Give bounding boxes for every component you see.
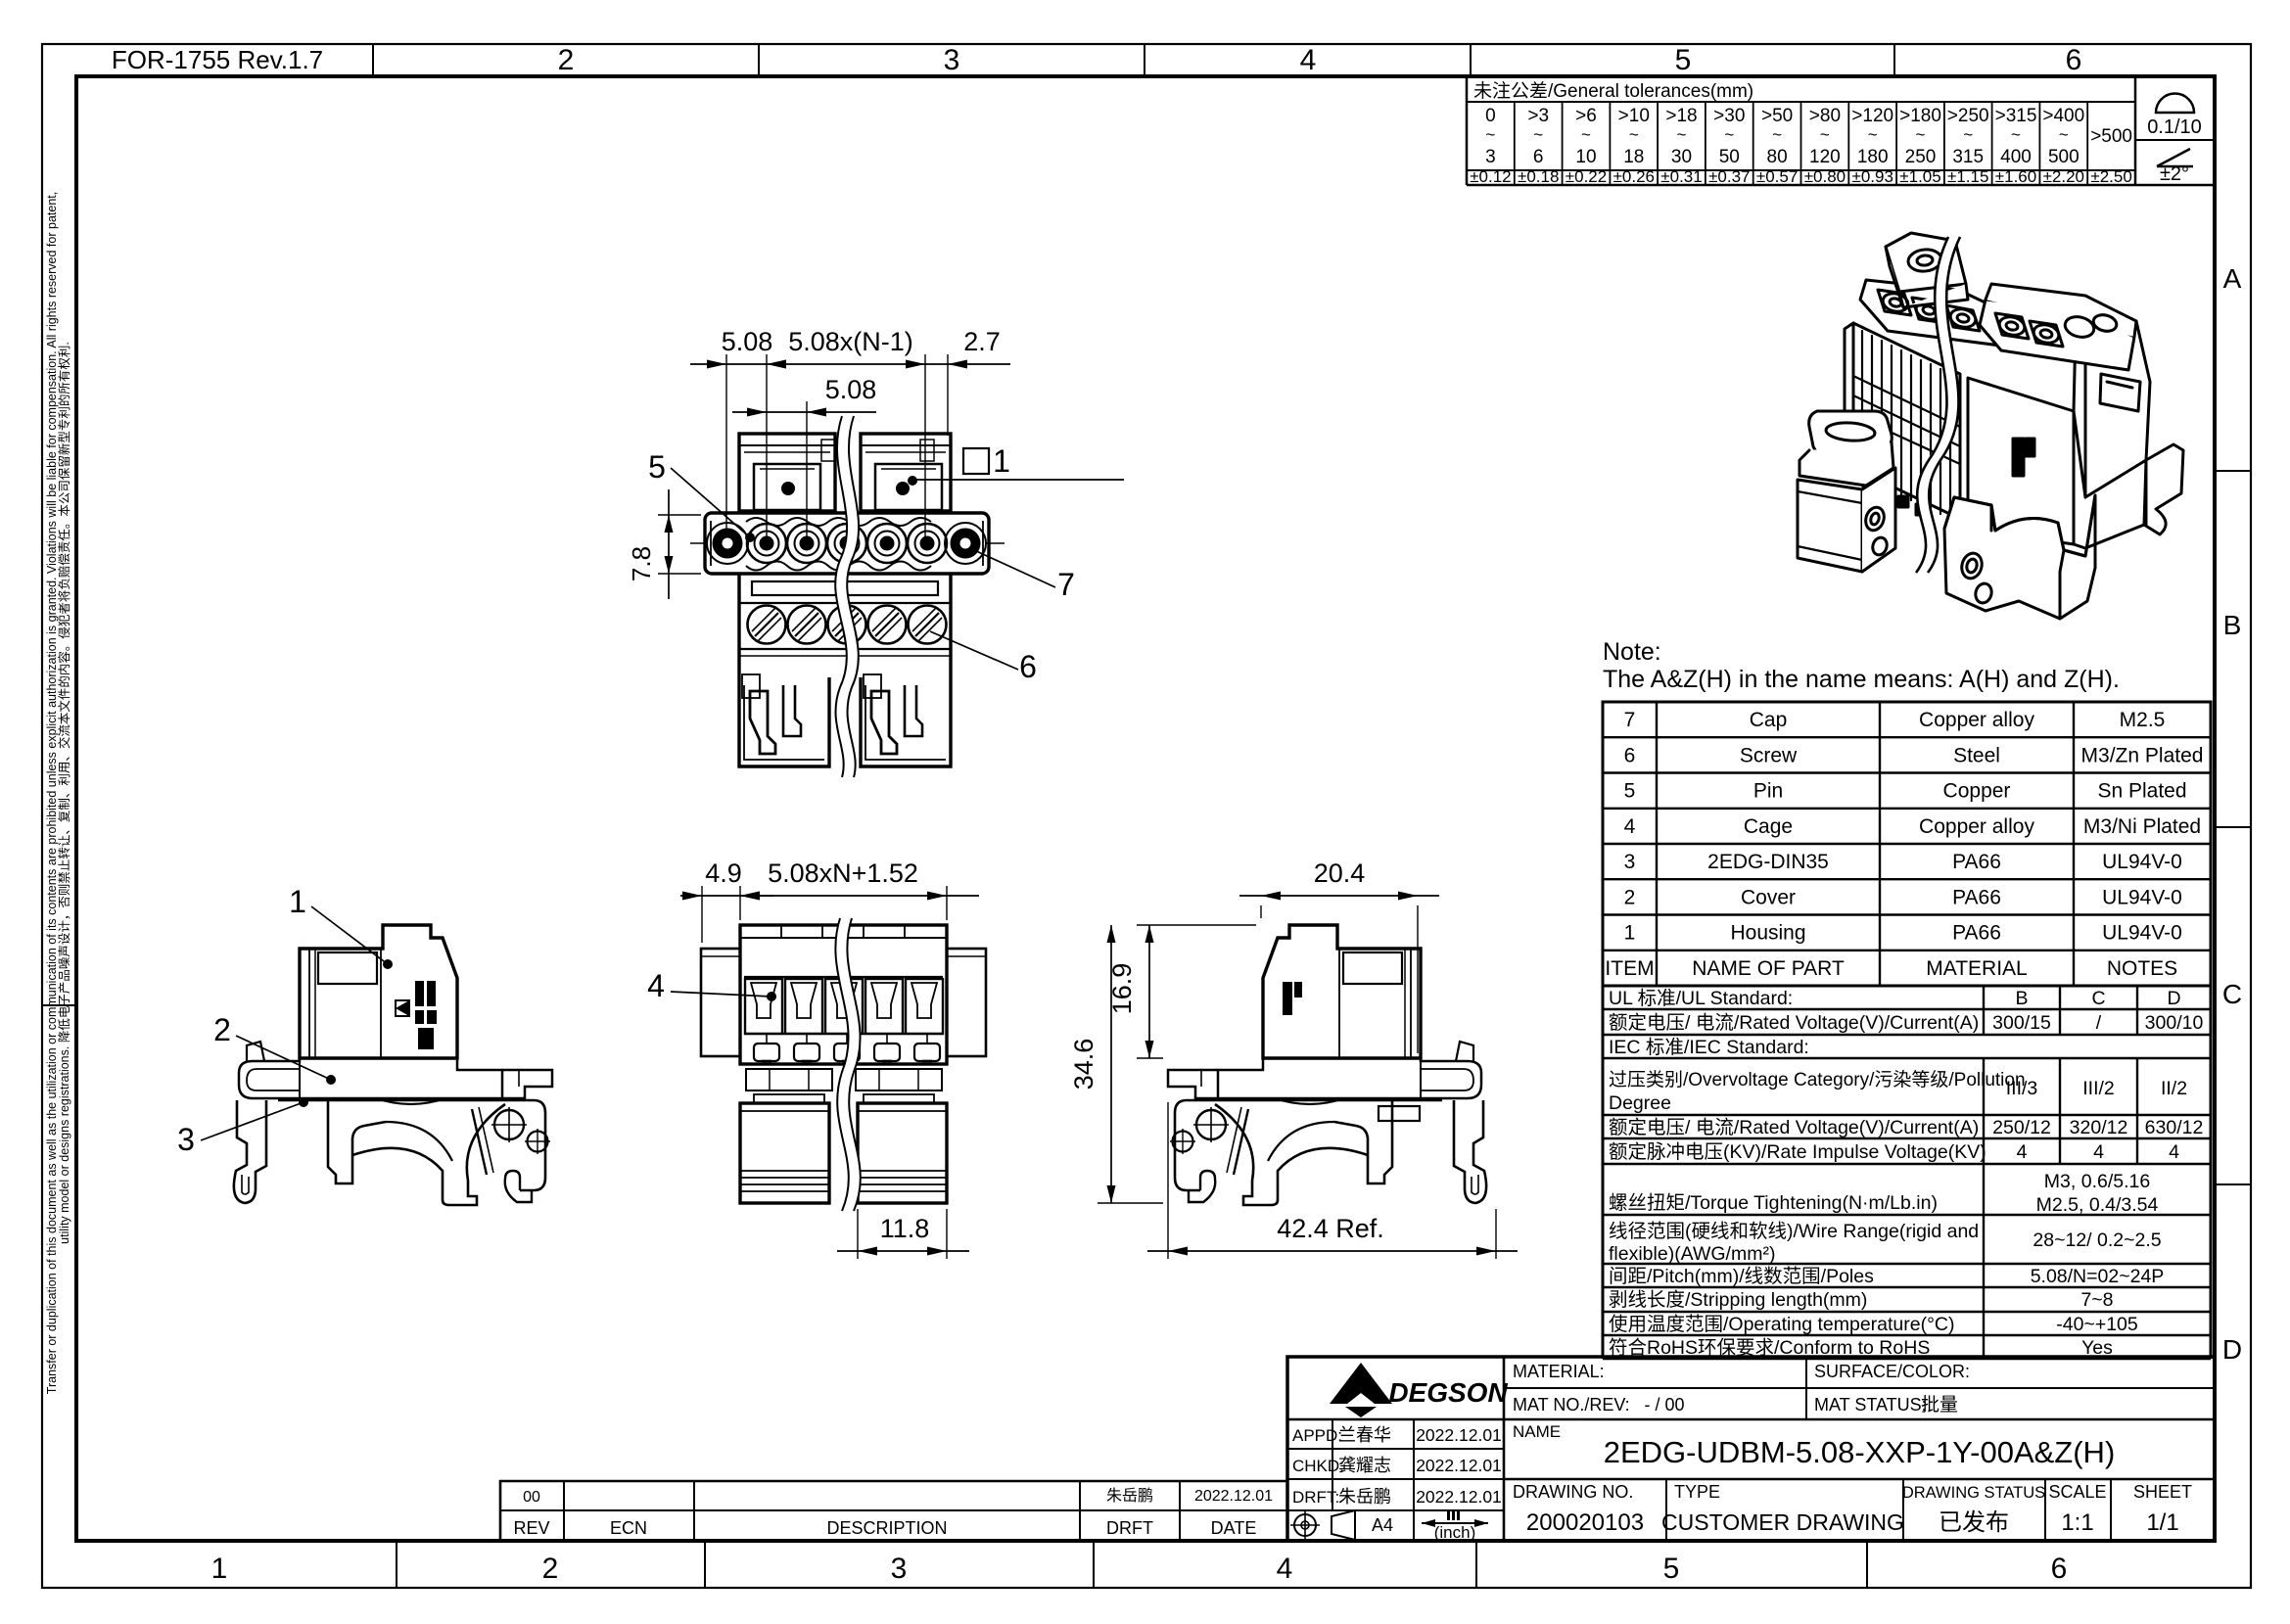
- svg-text:~: ~: [1772, 125, 1782, 144]
- svg-text:5: 5: [648, 449, 666, 485]
- svg-text:DRFT: DRFT: [1106, 1518, 1153, 1538]
- svg-text:II/2: II/2: [2161, 1078, 2187, 1099]
- svg-text:1: 1: [289, 884, 306, 919]
- svg-text:250/12: 250/12: [1992, 1117, 2051, 1138]
- svg-text:NOTES: NOTES: [2107, 957, 2177, 980]
- svg-text:~: ~: [1677, 125, 1687, 144]
- svg-text:630/12: 630/12: [2145, 1117, 2204, 1138]
- svg-text:PA66: PA66: [1952, 886, 2001, 908]
- svg-text:Cover: Cover: [1741, 886, 1796, 908]
- svg-text:额定电压/ 电流/Rated Voltage(V)/Curr: 额定电压/ 电流/Rated Voltage(V)/Current(A): [1609, 1012, 1979, 1034]
- svg-text:NAME: NAME: [1513, 1422, 1561, 1441]
- svg-text:5.08x(N-1): 5.08x(N-1): [788, 327, 913, 356]
- svg-text:A: A: [2223, 263, 2242, 294]
- svg-text:50: 50: [1719, 147, 1740, 167]
- svg-text:30: 30: [1671, 147, 1692, 167]
- svg-text:~: ~: [1724, 125, 1734, 144]
- svg-text:3: 3: [1485, 147, 1496, 167]
- svg-text:±0.12: ±0.12: [1470, 167, 1511, 186]
- svg-text:2022.12.01: 2022.12.01: [1416, 1425, 1502, 1445]
- svg-text:2EDG-DIN35: 2EDG-DIN35: [1707, 851, 1829, 873]
- svg-text:±2°: ±2°: [2160, 163, 2189, 185]
- svg-text:2022.12.01: 2022.12.01: [1416, 1456, 1502, 1475]
- svg-text:剥线长度/Stripping length(mm): 剥线长度/Stripping length(mm): [1609, 1289, 1867, 1311]
- svg-text:C: C: [2222, 979, 2242, 1009]
- svg-text:/: /: [2096, 1012, 2102, 1034]
- svg-text:SCALE: SCALE: [2048, 1482, 2106, 1502]
- svg-text:Note:: Note:: [1603, 638, 1661, 666]
- svg-text:7.8: 7.8: [627, 546, 656, 581]
- svg-text:Pin: Pin: [1753, 780, 1783, 803]
- svg-text:~: ~: [1533, 125, 1543, 144]
- svg-text:使用温度范围/Operating temperature(°: 使用温度范围/Operating temperature(°C): [1609, 1314, 1954, 1335]
- svg-text:~: ~: [1916, 125, 1926, 144]
- svg-text:1: 1: [211, 1553, 228, 1585]
- svg-text:Copper alloy: Copper alloy: [1919, 815, 2034, 838]
- svg-text:UL94V-0: UL94V-0: [2102, 886, 2182, 908]
- svg-text:1: 1: [993, 443, 1010, 479]
- svg-text:ECN: ECN: [610, 1518, 647, 1538]
- svg-text:0: 0: [1485, 106, 1496, 126]
- svg-text:Copper: Copper: [1943, 780, 2011, 803]
- svg-text:7: 7: [1624, 709, 1636, 731]
- svg-text:Housing: Housing: [1730, 922, 1805, 945]
- svg-text:>400: >400: [2042, 106, 2084, 126]
- svg-text:5: 5: [1675, 44, 1692, 76]
- svg-text:3: 3: [1624, 851, 1636, 873]
- svg-text:5.08/N=02~24P: 5.08/N=02~24P: [2031, 1266, 2165, 1287]
- svg-text:180: 180: [1857, 147, 1889, 167]
- svg-text:120: 120: [1809, 147, 1841, 167]
- svg-text:~: ~: [1820, 125, 1830, 144]
- svg-text:~: ~: [1963, 125, 1973, 144]
- svg-text:>500: >500: [2090, 126, 2132, 147]
- svg-text:315: 315: [1952, 147, 1984, 167]
- svg-text:2EDG-UDBM-5.08-XXP-1Y-00A&Z(H): 2EDG-UDBM-5.08-XXP-1Y-00A&Z(H): [1604, 1435, 2116, 1469]
- svg-text:18: 18: [1623, 147, 1644, 167]
- svg-text:Cap: Cap: [1750, 709, 1788, 731]
- svg-text:MAT NO./REV:: MAT NO./REV:: [1513, 1395, 1630, 1415]
- svg-text:TYPE: TYPE: [1674, 1482, 1720, 1502]
- svg-text:The A&Z(H) in the name means:: The A&Z(H) in the name means: A(H) and Z…: [1603, 666, 2120, 693]
- svg-text:5: 5: [1663, 1553, 1680, 1585]
- svg-text:>120: >120: [1851, 106, 1893, 126]
- svg-text:400: 400: [2000, 147, 2032, 167]
- svg-text:6: 6: [1019, 649, 1037, 684]
- svg-text:A4: A4: [1372, 1515, 1393, 1535]
- svg-text:M3/Ni Plated: M3/Ni Plated: [2083, 815, 2201, 838]
- svg-text:SURFACE/COLOR:: SURFACE/COLOR:: [1814, 1362, 1970, 1381]
- svg-text:龚耀志: 龚耀志: [1338, 1456, 1391, 1475]
- svg-text:4: 4: [2093, 1141, 2104, 1163]
- svg-text:0.1/10: 0.1/10: [2147, 116, 2202, 138]
- svg-text:DRAWING STATUS: DRAWING STATUS: [1902, 1484, 2045, 1502]
- svg-text:~: ~: [1581, 125, 1591, 144]
- svg-text:±0.93: ±0.93: [1851, 167, 1893, 186]
- svg-text:>6: >6: [1575, 106, 1597, 126]
- svg-text:M3, 0.6/5.16: M3, 0.6/5.16: [2044, 1171, 2150, 1192]
- svg-text:4: 4: [1300, 44, 1317, 76]
- svg-text:200020103: 200020103: [1526, 1509, 1644, 1536]
- svg-text:±0.80: ±0.80: [1804, 167, 1846, 186]
- svg-text:>180: >180: [1899, 106, 1941, 126]
- svg-text:ITEM: ITEM: [1605, 957, 1654, 980]
- svg-text:>80: >80: [1809, 106, 1841, 126]
- svg-text:DESCRIPTION: DESCRIPTION: [826, 1518, 947, 1538]
- svg-text:D: D: [2167, 988, 2180, 1009]
- svg-text:SHEET: SHEET: [2133, 1482, 2192, 1502]
- svg-text:PA66: PA66: [1952, 851, 2001, 873]
- svg-text:>315: >315: [1995, 106, 2037, 126]
- svg-text:2: 2: [213, 1012, 231, 1047]
- svg-text:±0.18: ±0.18: [1518, 167, 1559, 186]
- svg-text:2022.12.01: 2022.12.01: [1194, 1488, 1273, 1505]
- svg-text:已发布: 已发布: [1939, 1509, 2009, 1536]
- svg-text:间距/Pitch(mm)/线数范围/Poles: 间距/Pitch(mm)/线数范围/Poles: [1609, 1266, 1874, 1287]
- svg-text:00: 00: [523, 1489, 540, 1506]
- svg-text:线径范围(硬线和软线)/Wire Range(rigid a: 线径范围(硬线和软线)/Wire Range(rigid and: [1609, 1221, 1979, 1242]
- svg-text:2022.12.01: 2022.12.01: [1416, 1487, 1502, 1507]
- svg-text:4: 4: [647, 968, 665, 1003]
- svg-text:UL 标准/UL Standard:: UL 标准/UL Standard:: [1609, 988, 1793, 1009]
- svg-text:Transfer or duplication of thi: Transfer or duplication of this document…: [45, 192, 59, 1394]
- svg-text:34.6: 34.6: [1069, 1039, 1098, 1090]
- svg-text:DRAWING NO.: DRAWING NO.: [1513, 1482, 1633, 1502]
- svg-text:-40~+105: -40~+105: [2056, 1314, 2138, 1335]
- svg-text:(inch): (inch): [1434, 1523, 1476, 1542]
- svg-text:6: 6: [2051, 1553, 2068, 1585]
- svg-text:~: ~: [1868, 125, 1878, 144]
- svg-text:4: 4: [2017, 1141, 2028, 1163]
- svg-text:28~12/ 0.2~2.5: 28~12/ 0.2~2.5: [2033, 1230, 2161, 1251]
- svg-text:300/15: 300/15: [1992, 1012, 2051, 1034]
- svg-text:螺丝扭矩/Torque Tightening(N·m/Lb.: 螺丝扭矩/Torque Tightening(N·m/Lb.in): [1609, 1192, 1938, 1214]
- svg-text:UL94V-0: UL94V-0: [2102, 922, 2182, 945]
- svg-text:5.08: 5.08: [825, 375, 877, 404]
- svg-text:C: C: [2091, 988, 2105, 1009]
- svg-text:额定电压/ 电流/Rated Voltage(V)/Curr: 额定电压/ 电流/Rated Voltage(V)/Current(A): [1609, 1117, 1979, 1138]
- svg-text:11.8: 11.8: [880, 1214, 930, 1243]
- svg-text:>250: >250: [1947, 106, 1989, 126]
- svg-text:MAT STATUS:: MAT STATUS:: [1814, 1395, 1927, 1415]
- svg-text:CHKD:: CHKD:: [1292, 1457, 1344, 1475]
- svg-text:DRFT:: DRFT:: [1292, 1488, 1339, 1507]
- svg-text:6: 6: [2066, 44, 2082, 76]
- svg-text:DEGSON: DEGSON: [1388, 1377, 1508, 1408]
- svg-text:10: 10: [1575, 147, 1596, 167]
- svg-text:±0.22: ±0.22: [1566, 167, 1607, 186]
- svg-text:20.4: 20.4: [1314, 858, 1366, 888]
- svg-text:±0.31: ±0.31: [1660, 167, 1702, 186]
- svg-text:4.9: 4.9: [705, 858, 742, 888]
- svg-text:6: 6: [1624, 744, 1636, 766]
- svg-text:1: 1: [1624, 922, 1636, 945]
- svg-text:Sn Plated: Sn Plated: [2097, 780, 2186, 803]
- svg-text:额定脉冲电压(KV)/Rate Impulse Voltag: 额定脉冲电压(KV)/Rate Impulse Voltage(KV): [1609, 1141, 1986, 1163]
- svg-text:MATERIAL: MATERIAL: [1926, 957, 2027, 980]
- svg-text:朱岳鹏: 朱岳鹏: [1106, 1487, 1153, 1505]
- svg-text:~: ~: [2059, 125, 2069, 144]
- svg-text:FOR-1755 Rev.1.7: FOR-1755 Rev.1.7: [112, 45, 323, 74]
- svg-text:1:1: 1:1: [2061, 1509, 2093, 1536]
- svg-text:REV: REV: [513, 1518, 549, 1538]
- svg-text:2.7: 2.7: [963, 327, 1001, 356]
- svg-text:±1.60: ±1.60: [1995, 167, 2036, 186]
- svg-text:5.08: 5.08: [722, 327, 773, 356]
- svg-text:NAME OF PART: NAME OF PART: [1692, 957, 1845, 980]
- svg-text:4: 4: [2169, 1141, 2179, 1163]
- svg-text:42.4 Ref.: 42.4 Ref.: [1277, 1214, 1384, 1243]
- svg-text:III/2: III/2: [2082, 1078, 2115, 1099]
- svg-text:批量: 批量: [1921, 1394, 1958, 1415]
- svg-text:3: 3: [891, 1553, 908, 1585]
- svg-text:2: 2: [542, 1553, 559, 1585]
- svg-text:PA66: PA66: [1952, 922, 2001, 945]
- svg-text:5: 5: [1624, 780, 1636, 803]
- svg-text:M2.5, 0.4/3.54: M2.5, 0.4/3.54: [2036, 1194, 2159, 1216]
- svg-text:3: 3: [177, 1122, 195, 1157]
- svg-text:CUSTOMER DRAWING: CUSTOMER DRAWING: [1661, 1509, 1904, 1535]
- svg-text:>18: >18: [1665, 106, 1697, 126]
- svg-text:3: 3: [944, 44, 960, 76]
- svg-text:4: 4: [1624, 815, 1636, 838]
- svg-text:APPD:: APPD:: [1292, 1426, 1342, 1445]
- svg-text:7~8: 7~8: [2080, 1289, 2113, 1311]
- svg-text:5.08xN+1.52: 5.08xN+1.52: [768, 858, 918, 888]
- svg-text:4: 4: [1277, 1553, 1293, 1585]
- svg-text:2: 2: [1624, 886, 1636, 908]
- svg-text:兰春华: 兰春华: [1338, 1425, 1391, 1445]
- svg-text:B: B: [2015, 988, 2028, 1009]
- svg-text:Cage: Cage: [1744, 815, 1793, 838]
- svg-text:250: 250: [1905, 147, 1937, 167]
- svg-text:- / 00: - / 00: [1644, 1395, 1684, 1415]
- svg-text:III/3: III/3: [2006, 1078, 2038, 1099]
- svg-text:Steel: Steel: [1953, 744, 2000, 766]
- svg-text:>3: >3: [1527, 106, 1549, 126]
- svg-text:未注公差/General tolerances(mm): 未注公差/General tolerances(mm): [1473, 80, 1753, 102]
- svg-text:80: 80: [1767, 147, 1788, 167]
- svg-text:±1.05: ±1.05: [1899, 167, 1940, 186]
- svg-text:7: 7: [1057, 567, 1075, 602]
- svg-text:±0.37: ±0.37: [1708, 167, 1750, 186]
- svg-text:IEC 标准/IEC Standard:: IEC 标准/IEC Standard:: [1609, 1037, 1809, 1058]
- svg-text:M3/Zn Plated: M3/Zn Plated: [2081, 744, 2204, 766]
- svg-text:6: 6: [1533, 147, 1544, 167]
- svg-text:M2.5: M2.5: [2120, 709, 2166, 731]
- svg-text:Degree: Degree: [1609, 1092, 1671, 1114]
- svg-text:~: ~: [1629, 125, 1639, 144]
- svg-text:flexible)(AWG/mm²): flexible)(AWG/mm²): [1609, 1243, 1775, 1265]
- svg-text:±2.20: ±2.20: [2043, 167, 2084, 186]
- svg-text:~: ~: [2011, 125, 2021, 144]
- svg-text:±2.50: ±2.50: [2090, 167, 2131, 186]
- svg-text:500: 500: [2048, 147, 2080, 167]
- svg-text:1/1: 1/1: [2146, 1509, 2178, 1536]
- svg-text:~: ~: [1485, 125, 1495, 144]
- svg-text:±1.15: ±1.15: [1947, 167, 1988, 186]
- svg-text:Copper alloy: Copper alloy: [1919, 709, 2034, 731]
- svg-text:朱岳鹏: 朱岳鹏: [1338, 1487, 1391, 1507]
- svg-text:B: B: [2223, 610, 2242, 640]
- svg-text:D: D: [2222, 1334, 2242, 1365]
- svg-text:>30: >30: [1713, 106, 1745, 126]
- svg-text:320/12: 320/12: [2070, 1117, 2128, 1138]
- svg-text:Screw: Screw: [1740, 744, 1798, 766]
- svg-text:UL94V-0: UL94V-0: [2102, 851, 2182, 873]
- svg-text:MATERIAL:: MATERIAL:: [1513, 1362, 1605, 1381]
- svg-text:300/10: 300/10: [2145, 1012, 2204, 1034]
- svg-text:2: 2: [558, 44, 575, 76]
- svg-text:DATE: DATE: [1211, 1518, 1257, 1538]
- svg-text:过压类别/Overvoltage Category/污染等级: 过压类别/Overvoltage Category/污染等级/Pollution: [1609, 1069, 2026, 1090]
- svg-text:±0.57: ±0.57: [1756, 167, 1798, 186]
- svg-text:>50: >50: [1761, 106, 1793, 126]
- svg-text:>10: >10: [1618, 106, 1650, 126]
- svg-text:±0.26: ±0.26: [1613, 167, 1655, 186]
- svg-text:utility model or designs regis: utility model or designs registrations. …: [57, 342, 71, 1244]
